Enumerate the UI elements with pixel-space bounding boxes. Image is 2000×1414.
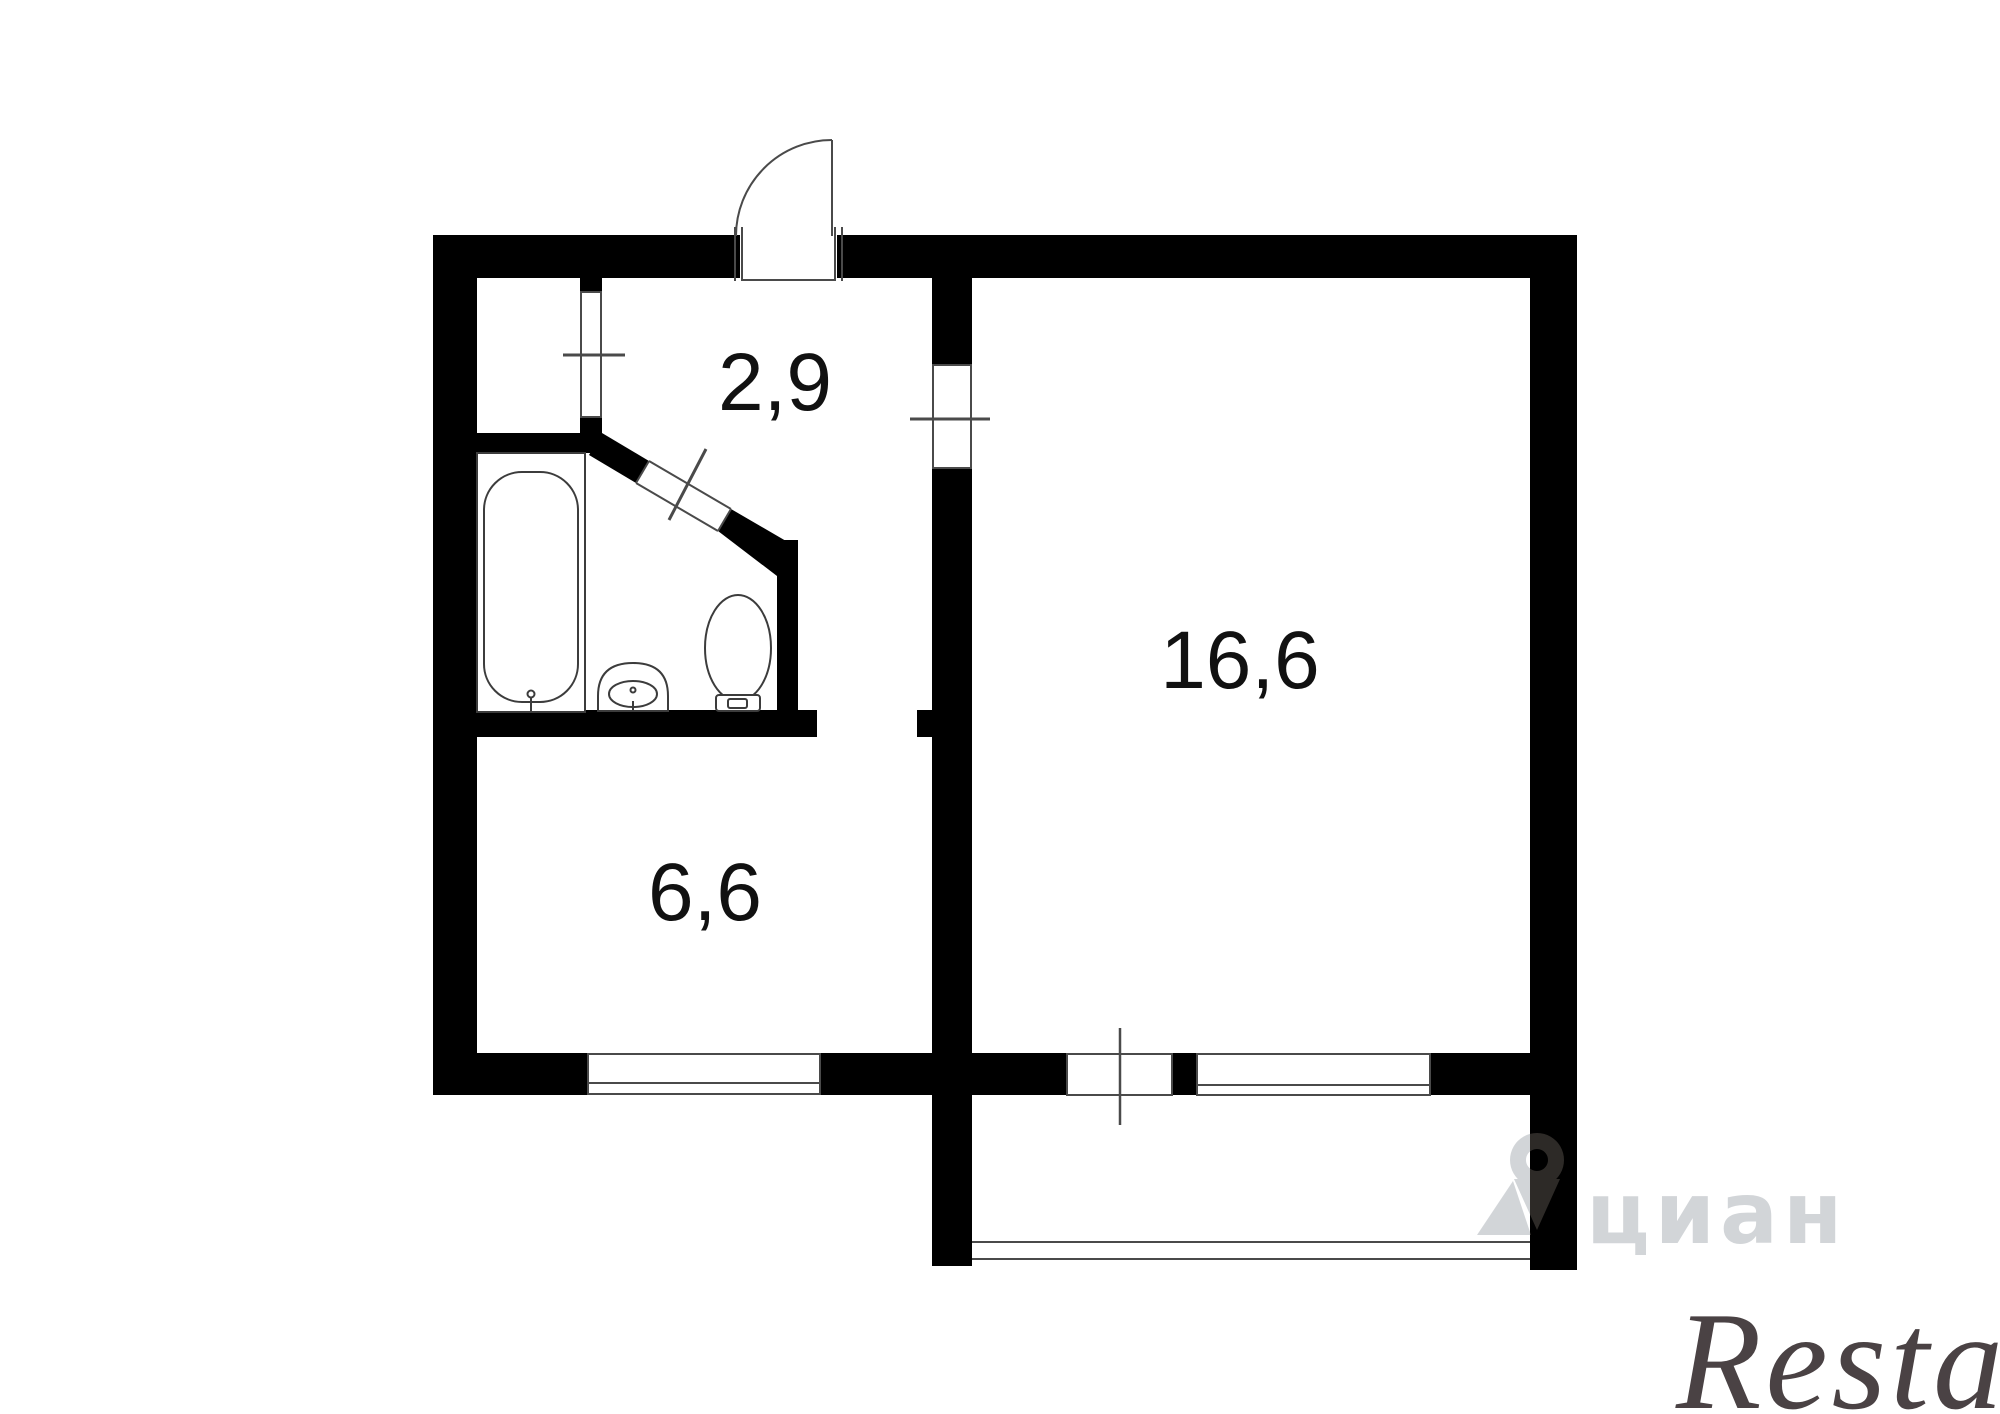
wall-bottom-middle bbox=[820, 1053, 1067, 1095]
cian-watermark-text: циан bbox=[1586, 1164, 1847, 1264]
walls bbox=[433, 235, 1577, 1270]
kitchen-area-label: 6,6 bbox=[648, 847, 762, 938]
wall-top-right-of-entry bbox=[837, 235, 1577, 278]
closet-door-opening bbox=[563, 292, 625, 417]
wall-outer-left bbox=[433, 235, 477, 1095]
wall-bath-bottom bbox=[473, 710, 817, 737]
living-room-area-label: 16,6 bbox=[1160, 615, 1320, 706]
bathroom-door-tick bbox=[669, 449, 706, 520]
floor-plan-canvas: 2,9 16,6 6,6 циан Restate bbox=[0, 0, 2000, 1414]
sink-basin bbox=[598, 663, 668, 711]
wall-top-left-of-entry bbox=[433, 235, 740, 278]
bathroom-door bbox=[636, 449, 731, 531]
wall-bottom-pier bbox=[1172, 1053, 1197, 1095]
wall-outer-right bbox=[1530, 235, 1577, 1270]
kitchen-window bbox=[588, 1054, 820, 1094]
wall-closet-stub-top bbox=[580, 278, 602, 292]
hallway-area-label: 2,9 bbox=[718, 337, 832, 428]
wall-kitchen-door-nub bbox=[917, 710, 932, 737]
toilet-bowl bbox=[705, 595, 771, 701]
toilet bbox=[705, 595, 771, 711]
living-room-door-opening bbox=[910, 365, 990, 468]
bathtub bbox=[477, 453, 585, 712]
entry-door bbox=[735, 140, 842, 281]
wall-bottom-room-right bbox=[1430, 1053, 1530, 1095]
wall-bath-right bbox=[777, 540, 798, 712]
entry-door-swing-arc bbox=[736, 140, 832, 236]
bathtub-drain bbox=[528, 691, 535, 698]
wall-center-upper bbox=[932, 278, 972, 365]
living-room-window bbox=[1197, 1054, 1430, 1095]
wall-closet-bottom bbox=[475, 433, 602, 453]
wall-bottom-kitchen-left bbox=[433, 1053, 588, 1095]
balcony-door bbox=[1067, 1028, 1172, 1125]
toilet-base-inner bbox=[728, 699, 747, 708]
restate-watermark-text: Restate bbox=[1675, 1284, 2000, 1414]
sink-drain bbox=[631, 688, 636, 693]
floor-plan-image: 2,9 16,6 6,6 циан Restate bbox=[0, 0, 2000, 1414]
wall-center-lower bbox=[932, 468, 972, 1266]
balcony-railing bbox=[972, 1242, 1530, 1259]
